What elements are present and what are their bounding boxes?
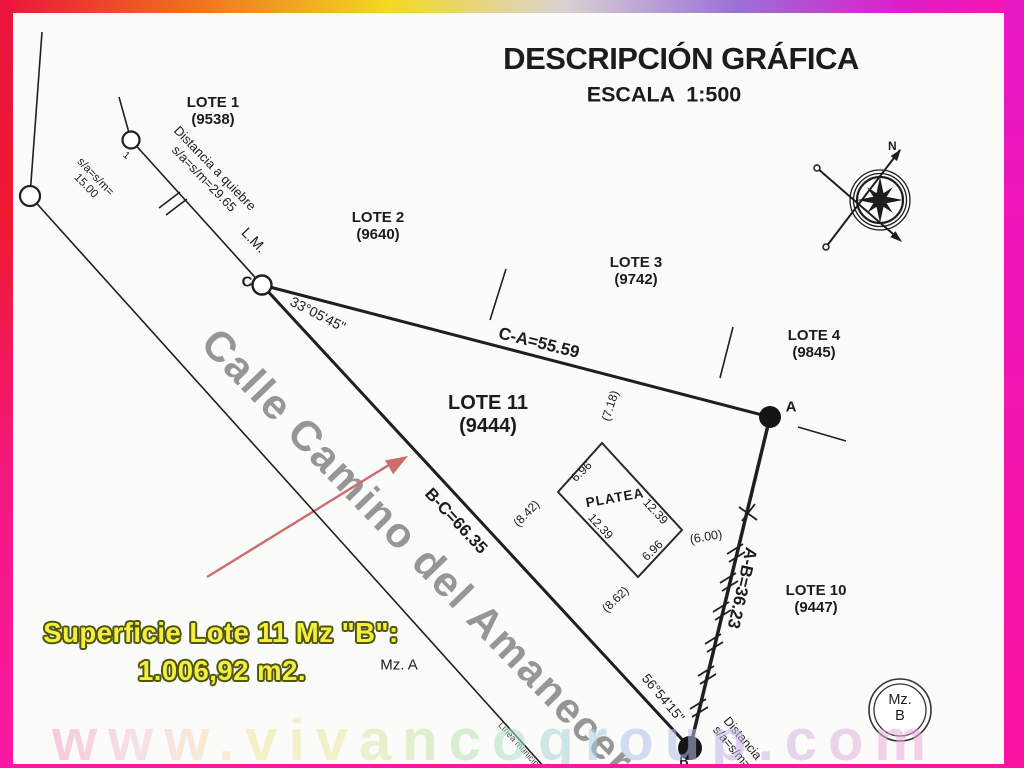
vertex-c-node bbox=[253, 276, 272, 295]
superficie-line2: 1.006,92 m2. bbox=[138, 655, 306, 687]
compass-north-label: N bbox=[888, 139, 897, 153]
page-title: DESCRIPCIÓN GRÁFICA bbox=[503, 41, 859, 77]
break-mark bbox=[159, 192, 187, 215]
site-watermark: www.vivancogroup.com bbox=[52, 707, 937, 768]
lote4-label: LOTE 4(9845) bbox=[788, 327, 841, 362]
mz-a-label: Mz. A bbox=[380, 656, 418, 673]
lote2-label: LOTE 2(9640) bbox=[352, 209, 405, 244]
frame-top bbox=[0, 0, 1024, 13]
vertex-a-node bbox=[759, 406, 781, 428]
superficie-line1: Superficie Lote 11 Mz "B": bbox=[43, 617, 398, 649]
street-direction-arrow bbox=[207, 456, 408, 577]
vertex-a-label: A bbox=[786, 398, 797, 415]
edge-node bbox=[20, 186, 40, 206]
boundary-ab bbox=[690, 417, 770, 748]
frame-bottom bbox=[0, 764, 1024, 768]
vertex-c-label: C bbox=[242, 273, 253, 290]
lote3-label: LOTE 3(9742) bbox=[610, 254, 663, 289]
boundary-cb bbox=[262, 285, 690, 748]
lote1-label: LOTE 1(9538) bbox=[187, 94, 240, 129]
lote11-label: LOTE 11(9444) bbox=[448, 392, 528, 438]
frame-left bbox=[0, 0, 13, 768]
scale-label: ESCALA 1:500 bbox=[587, 83, 742, 108]
lote10-label: LOTE 10(9447) bbox=[786, 582, 847, 617]
frame-right bbox=[1004, 0, 1024, 768]
vertex-1-node bbox=[123, 132, 140, 149]
survey-plan: Calle Camino del Amanecer bbox=[0, 0, 1024, 768]
compass-rose-icon: N bbox=[814, 139, 910, 250]
plan-linework: N bbox=[0, 0, 1024, 768]
